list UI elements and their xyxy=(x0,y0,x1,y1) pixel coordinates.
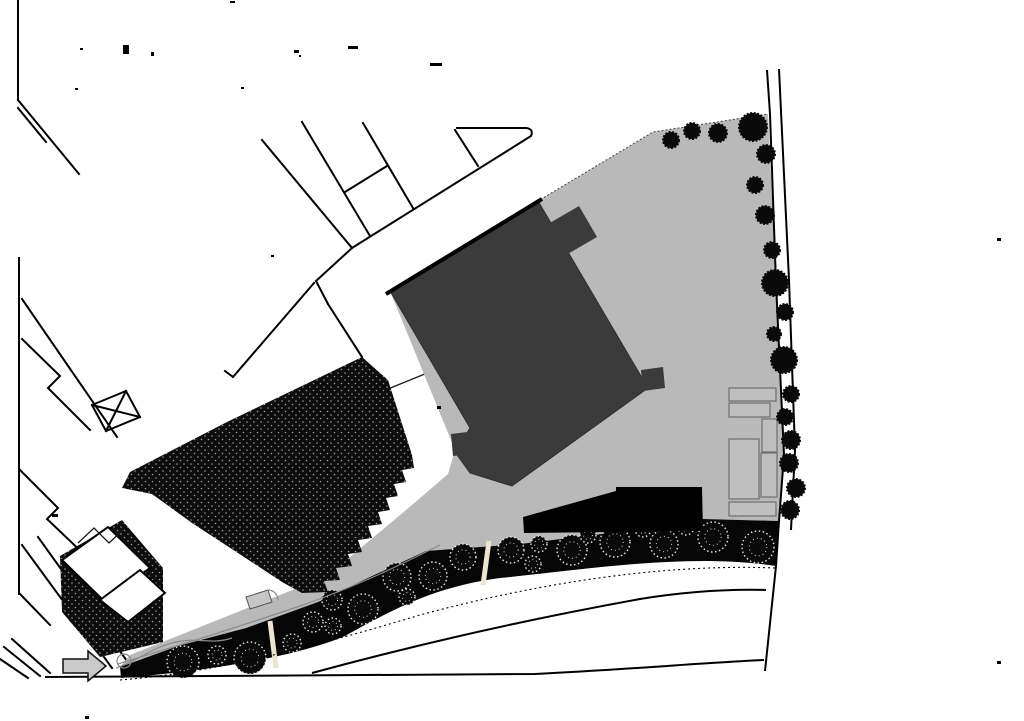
parcel-line xyxy=(302,122,370,236)
plan-mark xyxy=(430,63,442,66)
parcel-line xyxy=(225,283,314,377)
tree-canopy-icon xyxy=(325,618,341,634)
boundary-line xyxy=(18,108,46,142)
plan-mark xyxy=(348,46,358,49)
parcel-line xyxy=(22,299,117,437)
service-rect xyxy=(729,388,776,401)
parcel-line xyxy=(455,130,478,166)
tree-canopy-icon xyxy=(525,556,541,572)
plan-mark xyxy=(85,716,89,719)
plan-mark xyxy=(271,255,274,257)
tree-solid-icon xyxy=(780,454,798,472)
plan-mark xyxy=(230,1,235,3)
tree-canopy-icon xyxy=(322,590,342,610)
service-rect xyxy=(729,439,759,499)
service-structures xyxy=(729,388,777,516)
site-plan-canvas xyxy=(0,0,1024,721)
plan-mark xyxy=(151,52,154,56)
plan-mark xyxy=(997,661,1001,664)
tree-solid-icon xyxy=(762,270,788,296)
tree-solid-icon xyxy=(777,409,793,425)
road-edge xyxy=(20,594,50,625)
tree-canopy-icon xyxy=(167,646,199,678)
tree-canopy-icon xyxy=(399,589,415,605)
tree-canopy-icon xyxy=(234,642,266,674)
plan-mark xyxy=(80,48,83,50)
tree-solid-icon xyxy=(777,304,793,320)
parcel-line xyxy=(328,304,362,357)
tree-canopy-icon xyxy=(650,530,678,558)
tree-canopy-icon xyxy=(383,563,411,591)
tree-solid-icon xyxy=(781,501,799,519)
street-edge xyxy=(316,248,352,304)
tree-solid-icon xyxy=(783,386,799,402)
tree-solid-icon xyxy=(684,123,700,139)
tree-canopy-icon xyxy=(419,562,447,590)
plan-mark xyxy=(75,88,78,90)
tree-canopy-icon xyxy=(208,646,226,664)
tree-solid-icon xyxy=(787,479,805,497)
plan-mark xyxy=(437,406,441,409)
plan-mark xyxy=(997,238,1001,241)
parcel-line xyxy=(345,166,387,192)
tree-solid-icon xyxy=(771,347,797,373)
tree-solid-icon xyxy=(739,113,767,141)
proposed-building-tab xyxy=(641,367,665,391)
plan-mark xyxy=(299,55,301,57)
tree-canopy-icon xyxy=(498,537,524,563)
tree-solid-icon xyxy=(747,177,763,193)
tree-solid-icon xyxy=(709,124,727,142)
plan-mark xyxy=(123,45,129,54)
parcel-line xyxy=(262,140,352,248)
site-plan-page xyxy=(0,0,1024,721)
service-rect xyxy=(761,453,777,497)
tree-solid-icon xyxy=(663,132,679,148)
tree-solid-icon xyxy=(782,431,800,449)
tree-solid-icon xyxy=(756,206,774,224)
tree-solid-icon xyxy=(757,145,775,163)
parcel-line xyxy=(363,123,413,208)
boundary-line xyxy=(18,100,79,174)
service-rect xyxy=(762,419,777,452)
tree-canopy-icon xyxy=(303,612,323,632)
tree-canopy-icon xyxy=(742,531,774,563)
plan-mark xyxy=(241,87,244,89)
road-hatch xyxy=(0,639,50,678)
plan-mark xyxy=(52,514,58,517)
plan-mark xyxy=(294,50,299,53)
proposed-building-tab xyxy=(451,430,486,456)
tree-solid-icon xyxy=(767,327,781,341)
service-rect xyxy=(729,502,776,516)
tree-canopy-icon xyxy=(531,536,547,552)
tree-canopy-icon xyxy=(348,594,378,624)
tree-solid-icon xyxy=(764,242,780,258)
service-rect xyxy=(729,403,770,417)
tree-canopy-icon xyxy=(450,544,476,570)
